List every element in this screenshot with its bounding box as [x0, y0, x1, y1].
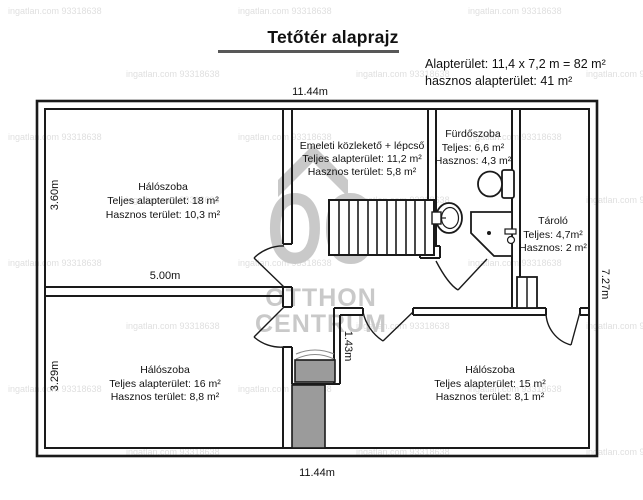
area-info: Alapterület: 11,4 x 7,2 m = 82 m² haszno… — [425, 56, 606, 90]
svg-text:Teljes: 6,6 m²: Teljes: 6,6 m² — [442, 142, 505, 154]
svg-text:Teljes alapterület: 18 m²: Teljes alapterület: 18 m² — [107, 195, 219, 207]
toilet-icon — [478, 170, 514, 198]
dim-bottom: 11.44m — [299, 467, 335, 479]
dim-inner-height: 1.43m — [342, 331, 354, 362]
door-bathroom — [436, 259, 487, 290]
label-bedroom-top-left: Hálószoba Teljes alapterület: 18 m² Hasz… — [106, 181, 221, 221]
door-bedroom-bottom-right-storage — [546, 312, 580, 345]
chimney-upper — [295, 360, 335, 382]
label-hall: Emeleti közlekető + lépcső Teljes alapte… — [300, 140, 425, 178]
svg-text:Hasznos terület: 8,1 m²: Hasznos terület: 8,1 m² — [436, 391, 545, 403]
dim-right: 7.27m — [599, 269, 611, 300]
label-storage: Tároló Teljes: 4,7m² Hasznos: 2 m² — [519, 215, 587, 254]
dim-inner-width: 5.00m — [150, 270, 181, 282]
svg-text:Teljes alapterület: 15 m²: Teljes alapterület: 15 m² — [434, 378, 546, 390]
shower-icon — [471, 212, 516, 256]
svg-text:Emeleti közlekető + lépcső: Emeleti közlekető + lépcső — [300, 140, 425, 152]
svg-text:Hálószoba: Hálószoba — [140, 364, 190, 376]
svg-text:Hasznos: 2 m²: Hasznos: 2 m² — [519, 242, 587, 254]
svg-text:Hálószoba: Hálószoba — [465, 364, 515, 376]
niche-hatch — [296, 350, 334, 359]
svg-text:Fürdőszoba: Fürdőszoba — [445, 128, 501, 140]
label-bedroom-bottom-left: Hálószoba Teljes alapterület: 16 m² Hasz… — [109, 364, 221, 403]
svg-text:Teljes alapterület: 11,2 m²: Teljes alapterület: 11,2 m² — [302, 153, 422, 165]
svg-text:Hasznos: 4,3 m²: Hasznos: 4,3 m² — [435, 155, 512, 167]
svg-text:Teljes: 4,7m²: Teljes: 4,7m² — [523, 229, 583, 241]
chimney-lower — [292, 385, 325, 448]
floorplan-page: { "title": "Tetőtér alaprajz", "info": {… — [0, 0, 643, 500]
area-info-useful: hasznos alapterület: 41 m² — [425, 73, 606, 90]
svg-text:Hasznos terület: 5,8 m²: Hasznos terület: 5,8 m² — [308, 166, 417, 178]
svg-text:Tároló: Tároló — [538, 215, 568, 227]
dim-left-top: 3.60m — [49, 180, 61, 211]
label-bathroom: Fürdőszoba Teljes: 6,6 m² Hasznos: 4,3 m… — [435, 128, 512, 167]
dim-top: 11.44m — [292, 86, 328, 98]
title-underline — [218, 50, 399, 53]
svg-text:Hasznos terület: 10,3 m²: Hasznos terület: 10,3 m² — [106, 209, 221, 221]
bathroom-fixtures — [432, 170, 516, 256]
page-title: Tetőtér alaprajz — [238, 27, 428, 48]
area-info-total: Alapterület: 11,4 x 7,2 m = 82 m² — [425, 56, 606, 73]
svg-text:Hasznos terület: 8,8 m²: Hasznos terület: 8,8 m² — [111, 391, 220, 403]
stairs-outline — [329, 200, 434, 255]
svg-text:Hálószoba: Hálószoba — [138, 181, 188, 193]
svg-text:Teljes alapterület: 16 m²: Teljes alapterület: 16 m² — [109, 378, 221, 390]
chimney-blocks — [292, 350, 335, 448]
staircase — [329, 200, 434, 255]
label-bedroom-bottom-right: Hálószoba Teljes alapterület: 15 m² Hasz… — [434, 364, 546, 403]
dim-left-bottom: 3.29m — [49, 361, 61, 392]
